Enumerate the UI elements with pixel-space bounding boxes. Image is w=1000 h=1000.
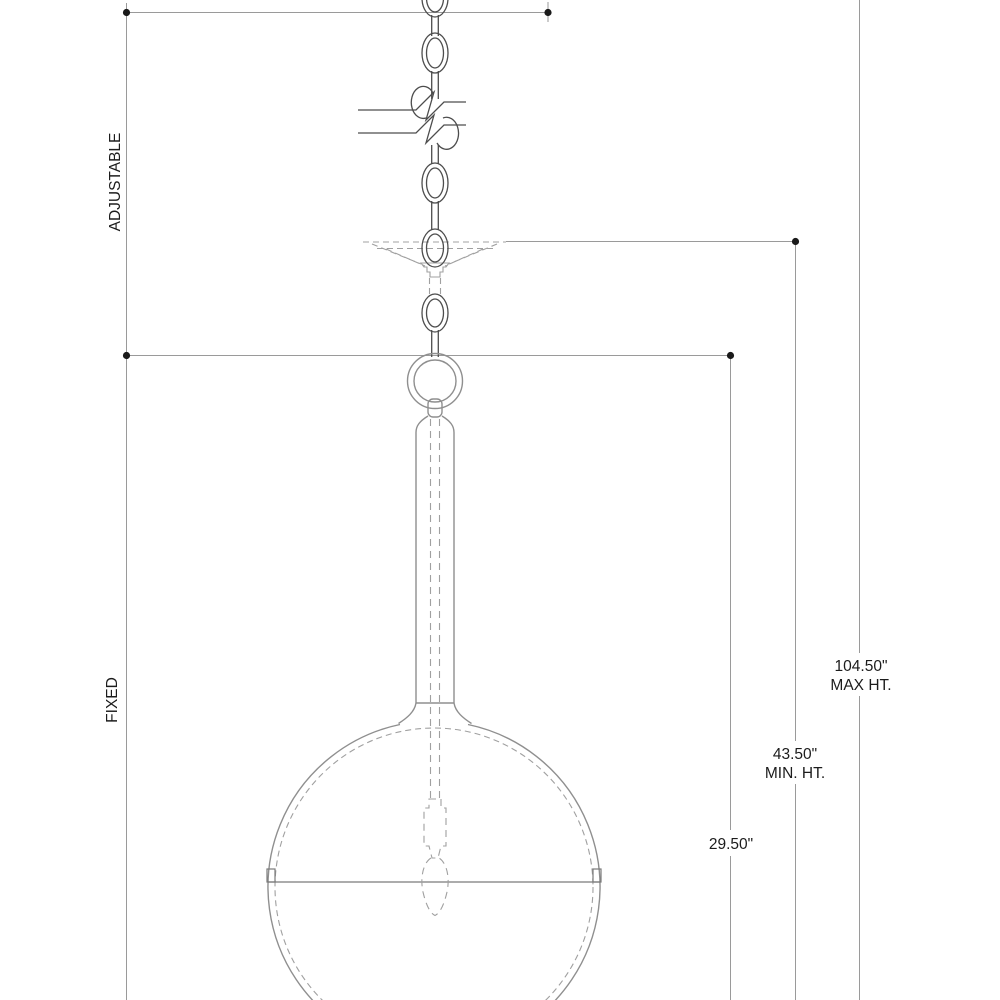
break-link-arc-lower — [437, 117, 459, 149]
stem-tube — [416, 416, 454, 703]
chain-connector — [432, 145, 439, 164]
chain-connector — [432, 201, 439, 230]
chain-link-inner — [427, 299, 444, 327]
pendant-fixture-diagram: ADJUSTABLE FIXED 104.50" MAX HT. 43.50" … — [0, 0, 1000, 1000]
canopy-cone-right-inner — [445, 249, 483, 266]
fixed-label: FIXED — [104, 677, 121, 723]
chain-link-inner — [427, 168, 444, 198]
fixture-body — [267, 354, 601, 1000]
globe-inner-dashed — [275, 728, 593, 1000]
dim-dot — [123, 9, 130, 16]
adjustable-label: ADJUSTABLE — [107, 133, 124, 232]
canopy-socket — [421, 263, 449, 277]
chain-link-inner — [427, 0, 444, 12]
chain-link-inner — [427, 38, 444, 68]
min-height-caption: MIN. HT. — [765, 765, 825, 782]
globe-outer — [268, 725, 600, 1000]
chain-link — [422, 0, 448, 17]
max-height-value: 104.50" — [835, 658, 888, 675]
hanging-chain — [358, 0, 466, 357]
max-height-caption: MAX HT. — [830, 677, 891, 694]
dim-dot — [123, 352, 130, 359]
break-zigzag-lower — [358, 115, 466, 143]
dim-dot — [544, 9, 551, 16]
stem-flare-left — [399, 703, 417, 724]
hanging-ring-inner — [414, 360, 456, 402]
light-bulb — [422, 858, 448, 916]
dim-dot — [727, 352, 734, 359]
ceiling-canopy — [363, 242, 506, 294]
break-link-arc-upper — [411, 86, 433, 118]
min-height-value: 43.50" — [773, 746, 817, 763]
body-height-value: 29.50" — [709, 836, 753, 853]
dim-dot — [792, 238, 799, 245]
lamp-socket — [424, 799, 446, 858]
stem-flare-right — [454, 703, 472, 724]
chain-break-symbol — [358, 86, 466, 149]
technical-drawing-canvas: ADJUSTABLE FIXED 104.50" MAX HT. 43.50" … — [0, 0, 1000, 1000]
hanging-ring-outer — [408, 354, 463, 409]
